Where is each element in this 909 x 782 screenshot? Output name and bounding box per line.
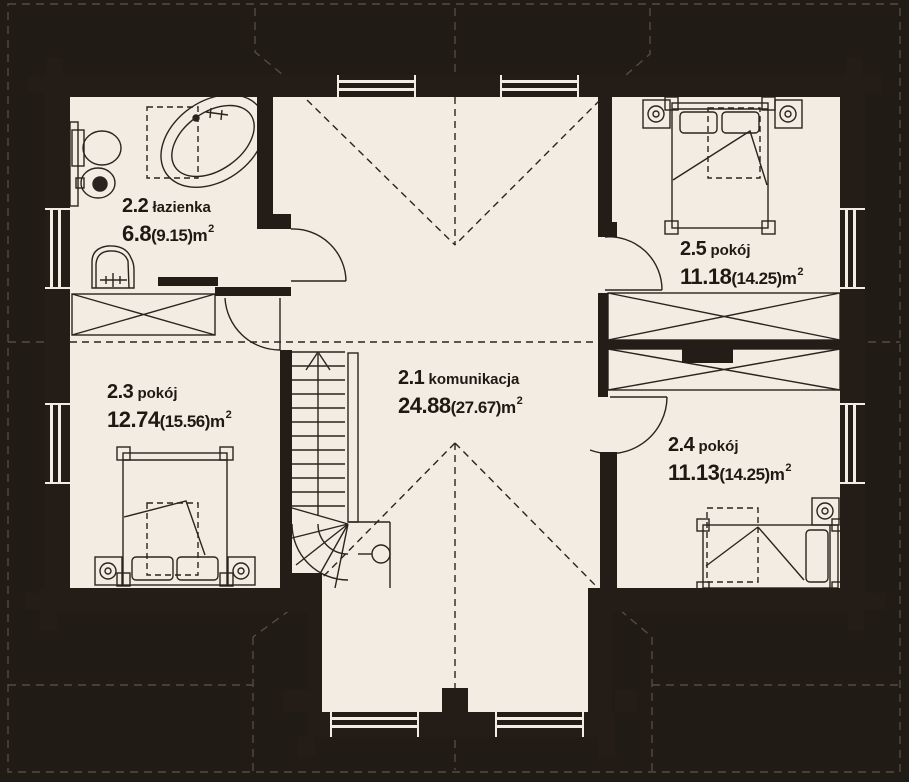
wall-right bbox=[840, 75, 865, 612]
stair-post bbox=[372, 545, 390, 563]
stair-wall bbox=[280, 350, 292, 588]
room-label-2-5: 2.5 pokój 11.18(14.25)m2 bbox=[680, 238, 802, 290]
log-stub bbox=[865, 593, 885, 610]
door-bathroom bbox=[291, 229, 346, 281]
window bbox=[45, 208, 70, 289]
wall-top bbox=[45, 75, 865, 97]
door-room-2-5 bbox=[605, 237, 662, 290]
log-stub bbox=[298, 737, 315, 757]
window bbox=[495, 712, 584, 737]
sink bbox=[76, 168, 115, 198]
bathroom-wall-jog bbox=[257, 214, 291, 229]
log-stub bbox=[615, 690, 637, 712]
log-stub bbox=[865, 77, 882, 93]
stair-wall-foot bbox=[292, 573, 322, 588]
wall-bottom-left bbox=[45, 588, 308, 612]
window bbox=[840, 208, 865, 289]
bathroom-wall-bottom-west bbox=[158, 277, 218, 286]
dormer-center-post bbox=[442, 688, 468, 737]
log-stub bbox=[28, 77, 45, 93]
stairs bbox=[292, 352, 390, 588]
knee-wall-notch bbox=[682, 348, 733, 363]
log-stub bbox=[47, 58, 63, 97]
window bbox=[45, 403, 70, 484]
window bbox=[840, 403, 865, 484]
room-label-2-1: 2.1 komunikacja 24.88(27.67)m2 bbox=[398, 367, 521, 419]
window bbox=[330, 712, 419, 737]
hall-wall-room25-jamb bbox=[598, 222, 617, 237]
bathroom-wall-bottom-east bbox=[215, 287, 291, 296]
nightstand bbox=[812, 498, 839, 525]
hall-wall-room25 bbox=[598, 97, 612, 237]
toilet bbox=[70, 122, 121, 206]
nightstand bbox=[95, 557, 255, 585]
log-stub bbox=[25, 593, 45, 610]
knee-wall-right-upper bbox=[608, 293, 840, 340]
window bbox=[337, 75, 416, 97]
door-room-2-3 bbox=[225, 298, 280, 350]
log-stub bbox=[848, 588, 864, 630]
log-stub bbox=[598, 737, 615, 757]
bathroom-wall-right bbox=[257, 97, 273, 215]
wall-bottom-right bbox=[612, 588, 865, 612]
window bbox=[500, 75, 579, 97]
bed-room-2-5 bbox=[665, 97, 775, 234]
room-label-2-3: 2.3 pokój 12.74(15.56)m2 bbox=[107, 381, 230, 433]
hall-wall-room24 bbox=[600, 452, 617, 588]
door-room-2-4 bbox=[590, 397, 667, 454]
room-label-2-4: 2.4 pokój 11.13(14.25)m2 bbox=[668, 434, 790, 486]
log-stub bbox=[283, 690, 308, 712]
wall-left bbox=[45, 75, 70, 612]
bed-room-2-4 bbox=[697, 519, 844, 594]
room-label-2-2: 2.2 łazienka 6.8(9.15)m2 bbox=[122, 195, 213, 247]
floor-plan: 2.2 łazienka 6.8(9.15)m2 2.5 pokój 11.18… bbox=[0, 0, 909, 782]
log-stub bbox=[846, 58, 862, 97]
knee-wall-left bbox=[72, 294, 215, 335]
bed-room-2-3 bbox=[117, 447, 233, 586]
radiator bbox=[92, 246, 134, 288]
